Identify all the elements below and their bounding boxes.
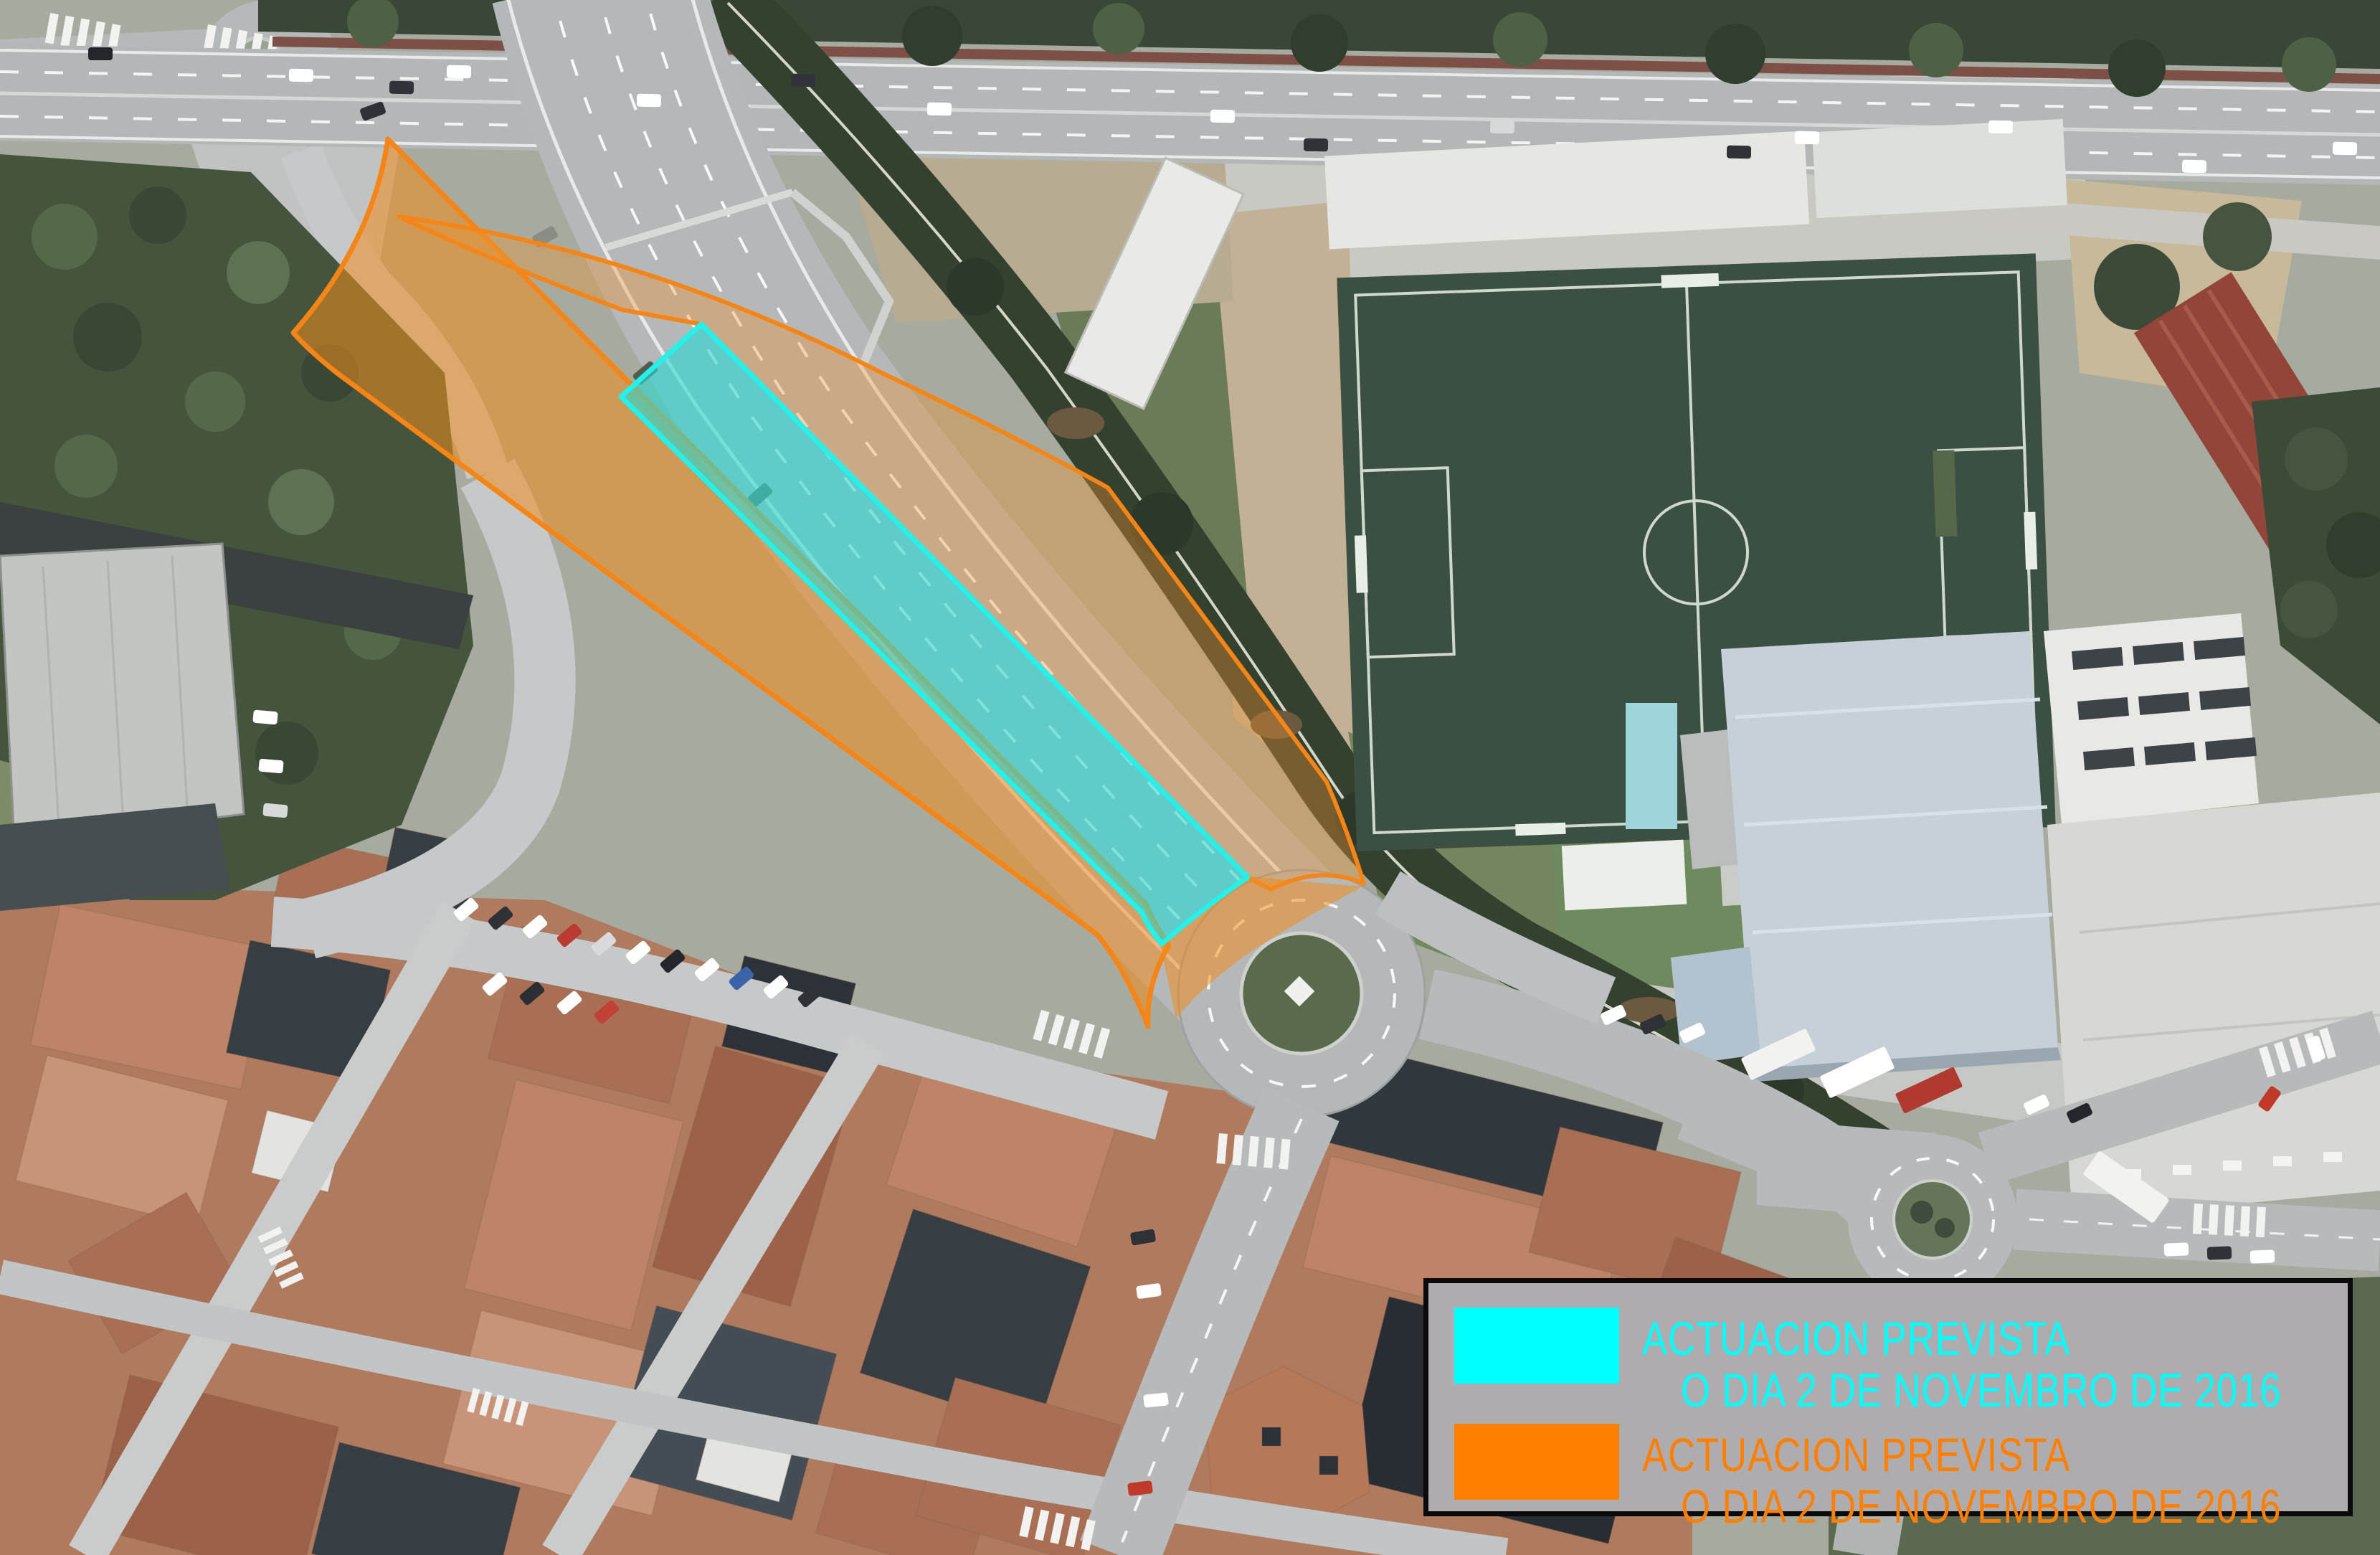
legend-orange-line2: O DIA 2 DE NOVEMBRO DE 2016 xyxy=(1681,1483,2281,1530)
legend-cyan-line2: O DIA 2 DE NOVEMBRO DE 2016 xyxy=(1681,1366,2281,1414)
cyan-swatch xyxy=(1454,1308,1619,1384)
aerial-map-page: ACTUACION PREVISTA O DIA 2 DE NOVEMBRO D… xyxy=(0,0,2380,1555)
legend: ACTUACION PREVISTA O DIA 2 DE NOVEMBRO D… xyxy=(1423,1278,2353,1516)
legend-orange-line1: ACTUACION PREVISTA xyxy=(1642,1431,2070,1478)
orange-swatch xyxy=(1454,1424,1619,1500)
legend-cyan-line1: ACTUACION PREVISTA xyxy=(1642,1315,2070,1362)
